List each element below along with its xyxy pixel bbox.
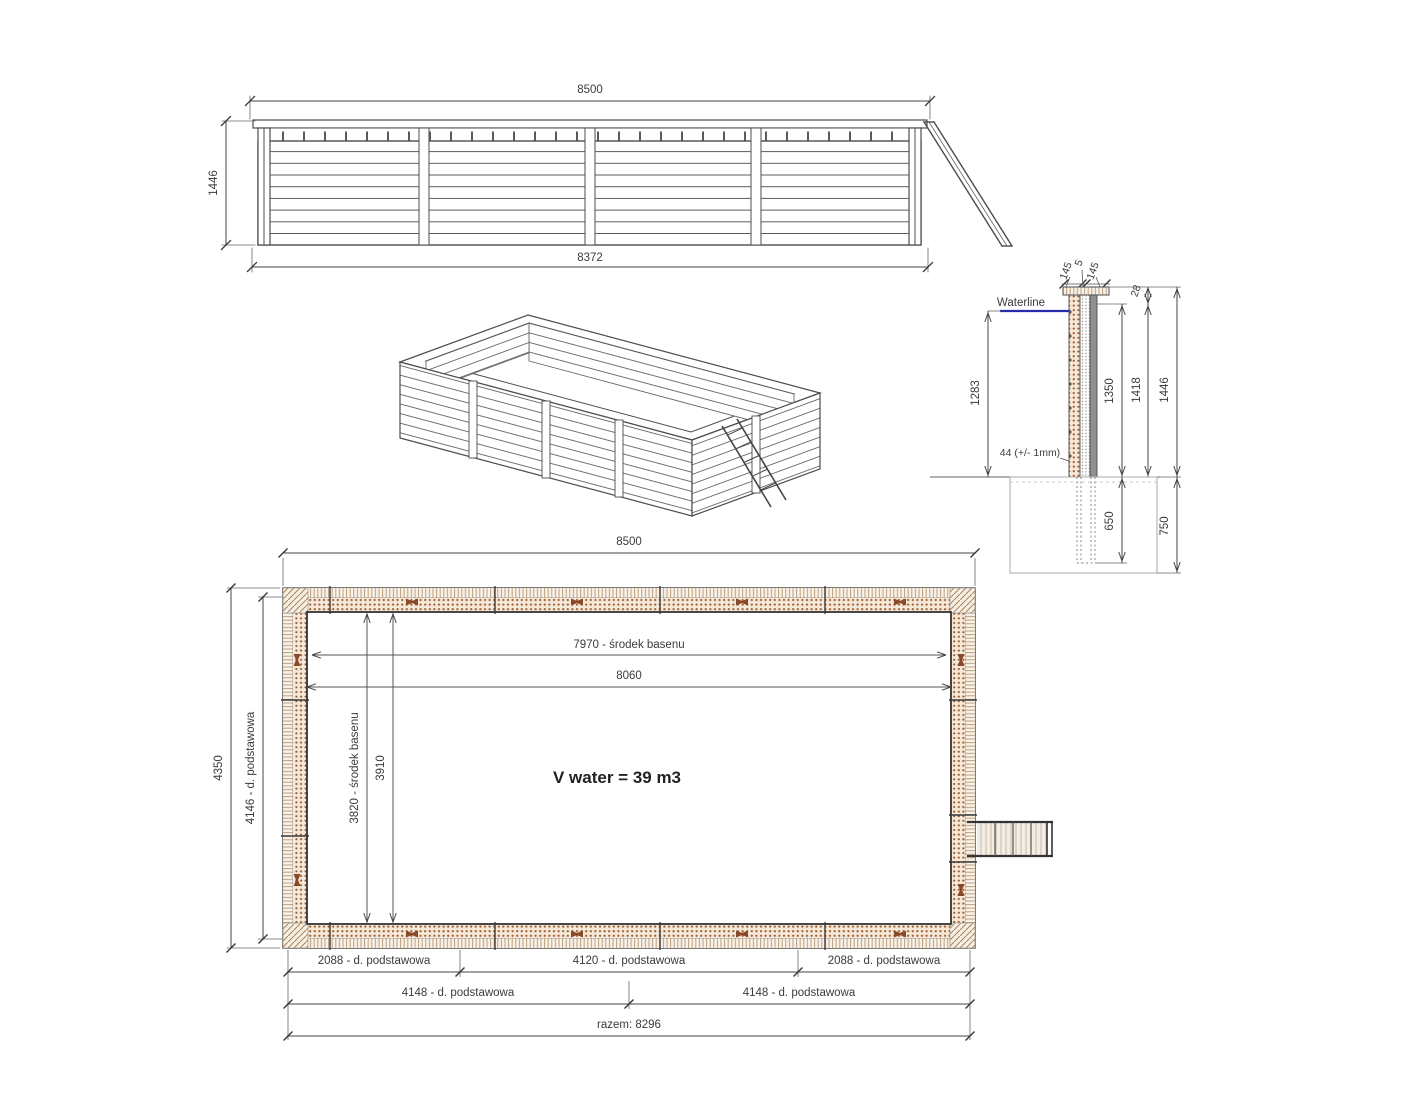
section-dim-waterline-depth: 1283 <box>970 380 982 406</box>
section-dim-post-embed: 650 <box>1104 511 1116 530</box>
plan-dim-row1-left: 2088 - d. podstawowa <box>318 955 431 967</box>
plan-volume-label: V water = 39 m3 <box>553 768 681 787</box>
bottom-dimension-chains: 2088 - d. podstawowa 4120 - d. podstawow… <box>284 950 975 1041</box>
plan-dim-inner-center-v: 3820 - środek basenu <box>349 712 361 823</box>
plan-dim-inner-center-h: 7970 - środek basenu <box>573 639 684 651</box>
elevation-dim-bottom: 8372 <box>577 252 603 264</box>
section-dim-cap-thickness: 28 <box>1129 283 1144 298</box>
section-plank-note: 44 (+/- 1mm) <box>1000 447 1060 459</box>
plan-dim-row2-left: 4148 - d. podstawowa <box>402 987 515 999</box>
plan-ladder <box>967 822 1053 856</box>
elevation-view: 8500 1446 8372 <box>208 84 1012 272</box>
plan-dim-total: razem: 8296 <box>597 1019 661 1031</box>
section-dim-cap-right: 145 <box>1085 261 1102 282</box>
plan-dim-row1-center: 4120 - d. podstawowa <box>573 955 686 967</box>
wall-section-view: 145 5 145 Waterline 1283 44 (+/- 1mm) 13 <box>930 258 1181 573</box>
section-dim-boards: 1350 <box>1104 378 1116 404</box>
drawing-canvas: 8500 1446 8372 <box>0 0 1422 1100</box>
elevation-dim-height: 1446 <box>208 170 220 196</box>
elevation-ladder <box>924 122 1012 246</box>
plan-dim-height-outer: 4350 <box>213 755 225 781</box>
section-dim-total-height: 1446 <box>1159 377 1171 403</box>
section-dim-wall-no-cap: 1418 <box>1131 377 1143 403</box>
elevation-dim-top: 8500 <box>577 84 603 96</box>
plan-dim-height-base: 4146 - d. podstawowa <box>245 711 257 824</box>
plan-dim-row2-right: 4148 - d. podstawowa <box>743 987 856 999</box>
plan-dim-inner-height: 3910 <box>375 755 387 781</box>
plan-dim-row1-right: 2088 - d. podstawowa <box>828 955 941 967</box>
technical-drawing-sheet: 8500 1446 8372 <box>0 0 1422 1100</box>
section-dim-cap-center: 5 <box>1073 258 1086 268</box>
plan-dim-width: 8500 <box>616 536 642 548</box>
section-waterline-label: Waterline <box>997 297 1045 309</box>
isometric-view <box>400 315 820 516</box>
section-dim-foundation-depth: 750 <box>1159 516 1171 535</box>
plan-view: 8500 <box>213 536 1053 953</box>
plan-dim-inner-width: 8060 <box>616 670 642 682</box>
